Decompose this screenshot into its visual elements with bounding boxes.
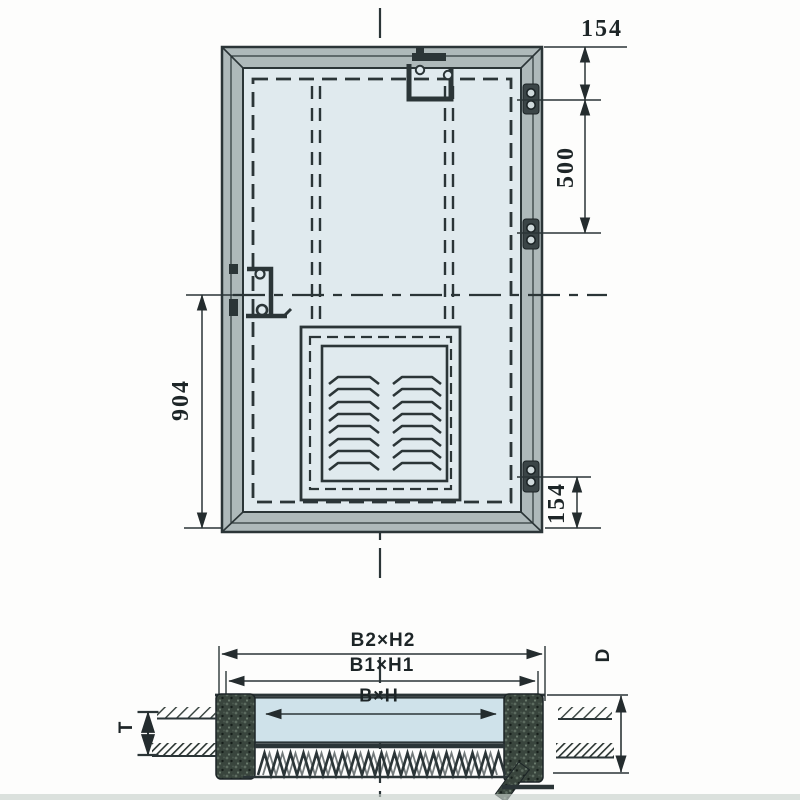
- dim-label-154-bottom: 154: [545, 482, 569, 524]
- gasket-block-left: [216, 694, 255, 779]
- drawing-linework: [0, 0, 800, 800]
- dim-label-154-top: 154: [581, 17, 623, 41]
- dim-label-b1h1: B1×H1: [350, 655, 415, 677]
- hinge-top: [523, 84, 539, 114]
- bulkhead-plate-right-top: [558, 707, 612, 720]
- dim-label-d: D: [593, 648, 615, 663]
- scan-edge-artifact: [0, 794, 800, 800]
- coaming-spring-section: [243, 746, 512, 777]
- louver-vent: [301, 327, 460, 500]
- bulkhead-plate-right-bottom: [556, 743, 614, 758]
- dim-label-b2h2: B2×H2: [351, 630, 416, 652]
- hinge-middle: [523, 219, 539, 249]
- bulkhead-plate-left-top: [157, 707, 217, 719]
- technical-drawing-ship-door: 154 500 904 154 B2×H2 B1×H1 B×H D T: [0, 0, 800, 800]
- dim-label-t: T: [116, 721, 138, 734]
- bulkhead-plate-left-bottom: [152, 743, 217, 757]
- dim-label-bxh: B×H: [359, 686, 399, 707]
- dim-label-904: 904: [169, 379, 193, 421]
- dim-label-500: 500: [554, 146, 578, 188]
